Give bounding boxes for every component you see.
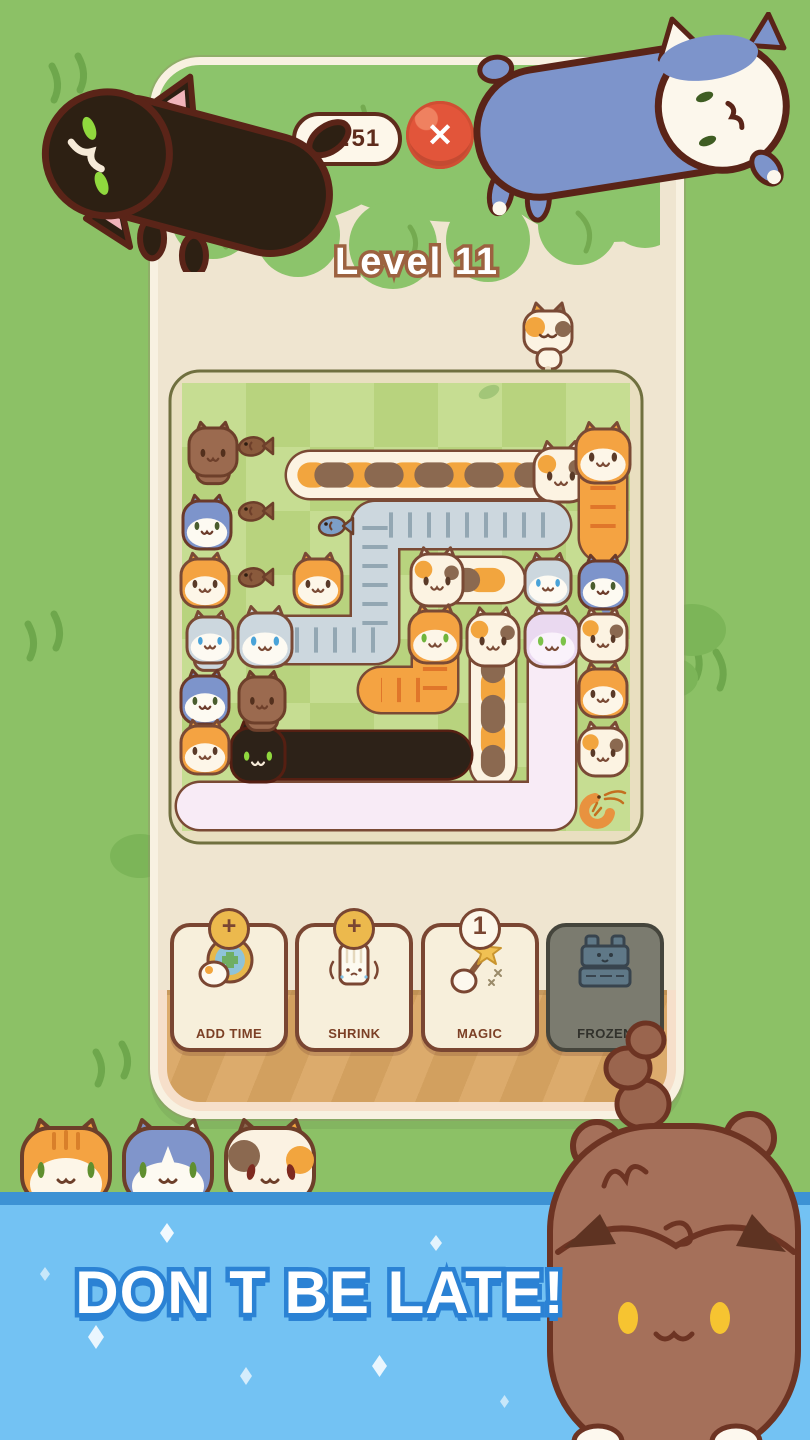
game-screen: 00:51 ✕ Level 11 + xyxy=(0,0,810,1440)
add-time-label: ADD TIME xyxy=(196,1026,262,1041)
orange-cat-2[interactable] xyxy=(294,553,342,607)
shrink-label: SHRINK xyxy=(328,1026,380,1041)
orange-long-cat-vertical[interactable] xyxy=(576,423,630,538)
magic-button[interactable]: 1 MAGIC xyxy=(421,923,539,1052)
magic-label: MAGIC xyxy=(457,1026,502,1041)
close-icon: ✕ xyxy=(427,116,454,154)
shrink-button[interactable]: + SHRINK xyxy=(295,923,413,1052)
calico-long-cat-vertical[interactable] xyxy=(467,608,519,765)
brown-cat-2[interactable] xyxy=(239,671,285,730)
orange-tabby-head xyxy=(16,1116,116,1200)
gray-cat-small[interactable] xyxy=(187,611,233,670)
calico-cat-right-1[interactable] xyxy=(579,608,627,662)
calico-cat-head xyxy=(220,1116,320,1200)
calico-cat-right-2[interactable] xyxy=(579,722,627,776)
blue-long-cat xyxy=(462,12,810,240)
game-board[interactable] xyxy=(167,368,645,846)
orange-cat-right[interactable] xyxy=(579,663,627,717)
add-time-badge: + xyxy=(208,908,250,950)
frozen-cat-icon xyxy=(572,932,638,998)
black-long-cat xyxy=(15,62,355,272)
husky-cat-2[interactable] xyxy=(181,670,229,724)
banner-text: DON T BE LATE! xyxy=(0,1258,640,1327)
brown-cat[interactable] xyxy=(189,422,237,483)
calico-long-cat-2[interactable] xyxy=(411,548,502,606)
magic-badge: 1 xyxy=(459,908,501,950)
orange-cat-1[interactable] xyxy=(181,553,229,607)
add-time-button[interactable]: + ADD TIME xyxy=(170,923,288,1052)
calico-long-cat[interactable] xyxy=(310,442,588,502)
orange-cat-3[interactable] xyxy=(181,720,229,774)
husky-cat-1[interactable] xyxy=(183,495,231,549)
gray-cat-2[interactable] xyxy=(525,553,571,605)
shrink-badge: + xyxy=(333,908,375,950)
bottom-cat-row xyxy=(16,1116,320,1200)
blue-cat-head xyxy=(118,1116,218,1200)
brown-cat-mascot xyxy=(540,1018,810,1440)
